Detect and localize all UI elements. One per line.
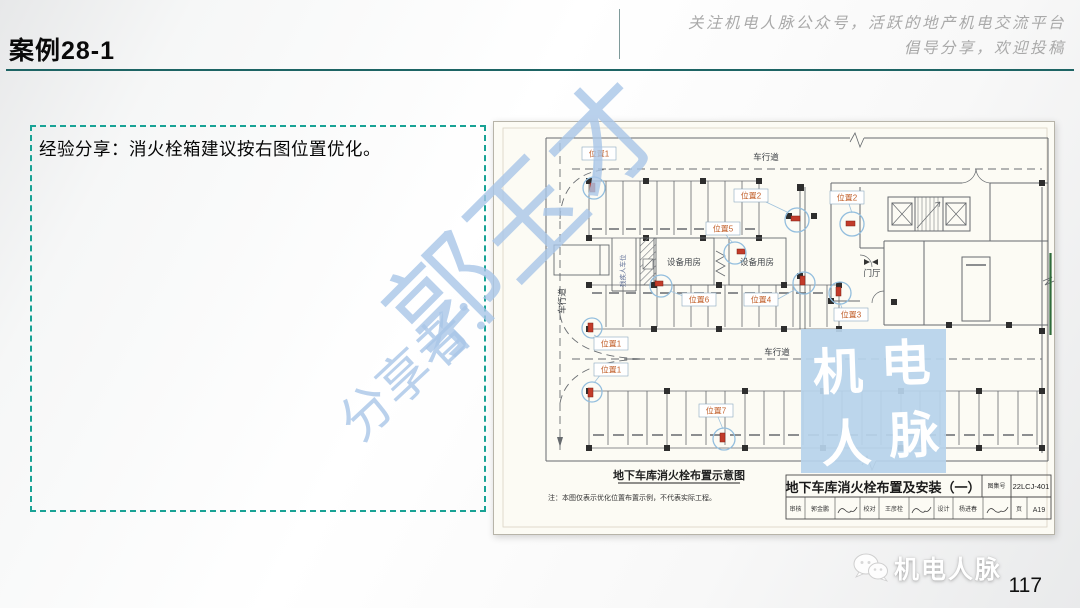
lane-label-left: 车行道 [557,288,567,314]
position-label: 位置3 [841,310,862,320]
header-tagline: 关注机电人脉公众号，活跃的地产机电交流平台 倡导分享，欢迎投稿 [688,11,1066,61]
position-label: 位置1 [601,339,622,349]
brand-name: 机电人脉 [894,550,1002,586]
position-label: 位置4 [751,295,772,305]
stamp-char: 脉 [888,405,941,466]
page-number: 117 [1009,574,1042,598]
columns-middle-row [586,282,842,332]
position-label: 位置5 [713,224,734,234]
design-label: 设计 [937,505,949,513]
atlas-drawing-scan: 车行道 车行道 车行道 设备用房 设备用房 门厅 残疾人车位 位置1 位置5 [493,121,1055,535]
reviewer-name: 郭金鹏 [811,505,829,513]
lane-arrow [557,437,563,447]
stamp-char: 人 [820,413,872,474]
title-block-credits: 审核 郭金鹏 校对 王彦栓 设计 杨进春 页 A19 [789,505,1045,514]
brand-stamp: 机 电 人 脉 [801,329,946,474]
review-label: 审核 [789,505,801,513]
slide: 案例28-1 关注机电人脉公众号，活跃的地产机电交流平台 倡导分享，欢迎投稿 经… [0,0,1080,608]
lane-label-middle: 车行道 [764,347,790,357]
atlas-number-label: 图集号 [987,482,1005,490]
stamp-char: 机 [812,341,864,402]
equipment-room-label-1: 设备用房 [667,257,701,267]
position-label: 位置1 [601,365,622,375]
parking-block-middle [589,285,839,329]
atlas-number: 22LCJ-401 [1013,482,1050,491]
title-underline [6,69,1074,71]
position-label: 位置2 [837,193,858,203]
designer-name: 杨进春 [959,505,977,513]
sheet-frame [503,128,1047,527]
position-label: 位置2 [741,191,762,201]
parking-plan-svg: 车行道 车行道 车行道 设备用房 设备用房 门厅 残疾人车位 位置1 位置5 [494,122,1054,534]
wechat-icon [853,553,889,583]
tagline-line1: 关注机电人脉公众号，活跃的地产机电交流平台 [688,11,1066,36]
lobby-label: 门厅 [863,268,881,278]
experience-note-box: 经验分享：消火栓箱建议按右图位置优化。 [30,125,486,512]
stamp-char: 电 [880,333,932,394]
position-label: 位置7 [706,406,727,416]
sheet-page-number: A19 [1033,507,1046,514]
drawing-footnote: 注：本图仅表示优化位置布置示例，不代表实际工程。 [548,493,716,502]
experience-note-text: 经验分享：消火栓箱建议按右图位置优化。 [39,136,477,161]
page-title: 案例28-1 [9,31,115,67]
tagline-line2: 倡导分享，欢迎投稿 [688,36,1066,61]
check-label: 校对 [863,505,875,513]
position-label: 位置6 [689,295,710,305]
sheet-page-label: 页 [1016,506,1022,513]
position-label: 位置1 [589,149,610,159]
brand-footer: 机电人脉 [853,550,1002,586]
drawing-caption: 地下车库消火栓布置示意图 [613,468,745,482]
lane-label-top: 车行道 [753,152,779,162]
equipment-room-label-2: 设备用房 [740,257,774,267]
header-divider [619,9,620,59]
title-block-title: 地下车库消火栓布置及安装（一） [785,480,980,495]
accessible-space-label: 残疾人车位 [618,254,627,287]
checker-name: 王彦栓 [885,505,903,513]
